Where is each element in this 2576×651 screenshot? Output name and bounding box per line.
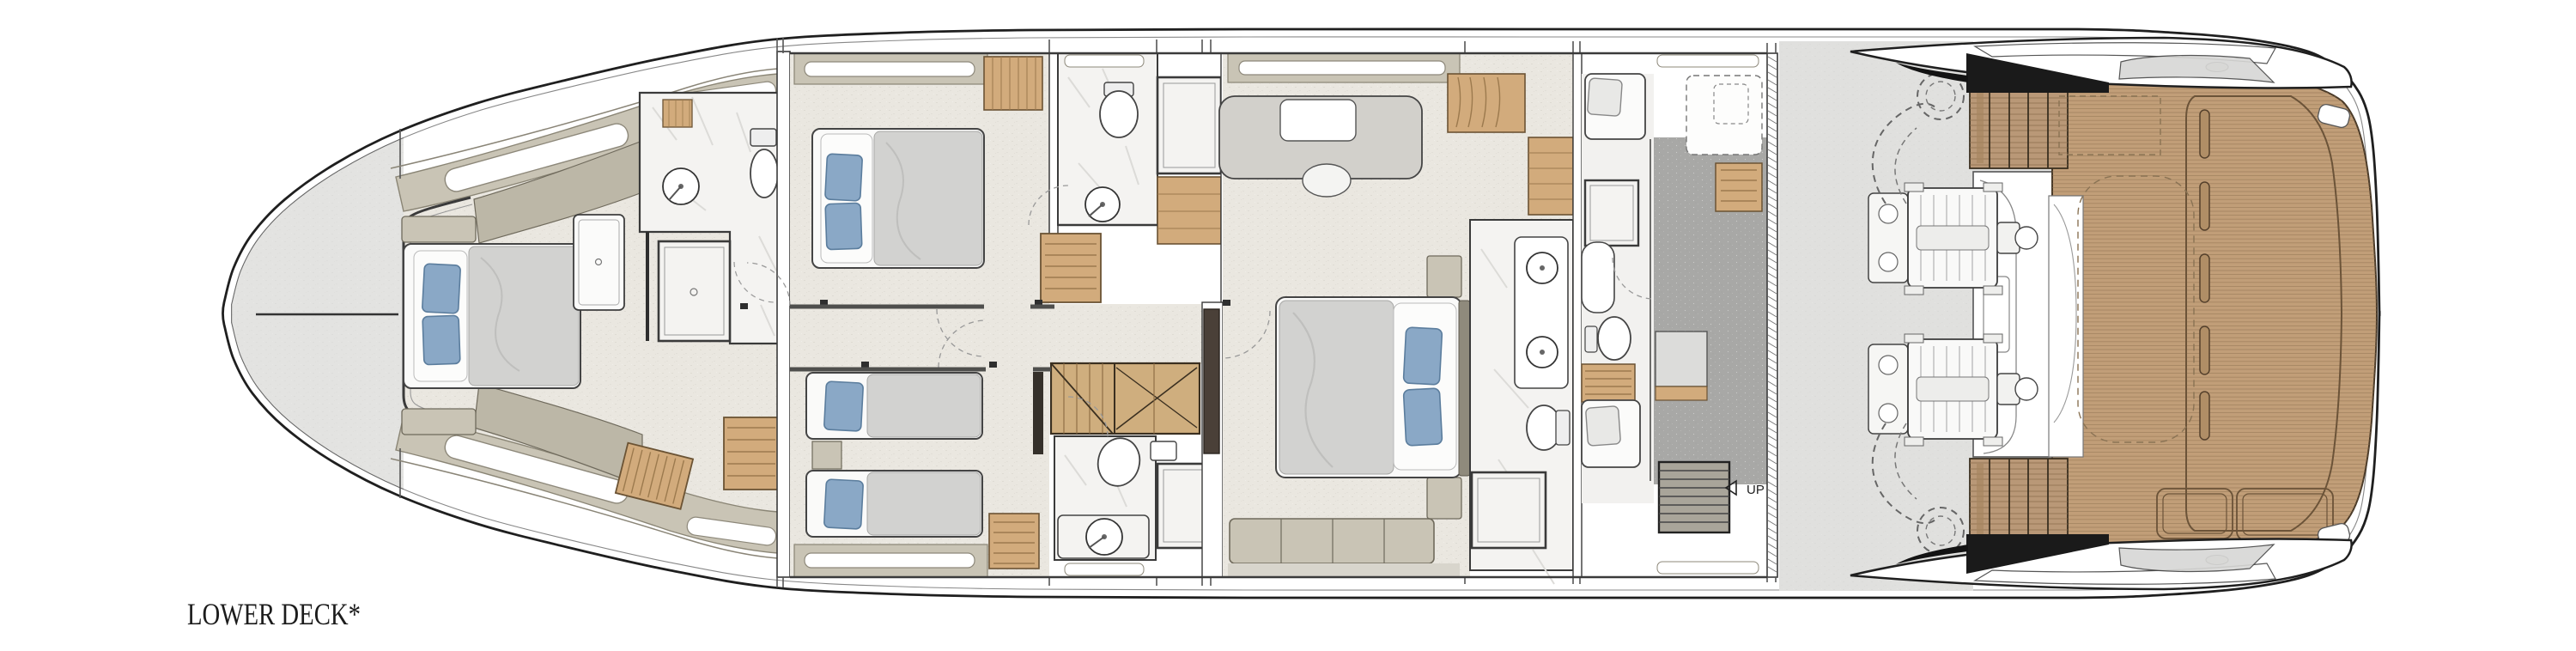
svg-text:UP: UP — [1747, 483, 1765, 497]
svg-text:LOWER DECK*: LOWER DECK* — [187, 597, 361, 631]
